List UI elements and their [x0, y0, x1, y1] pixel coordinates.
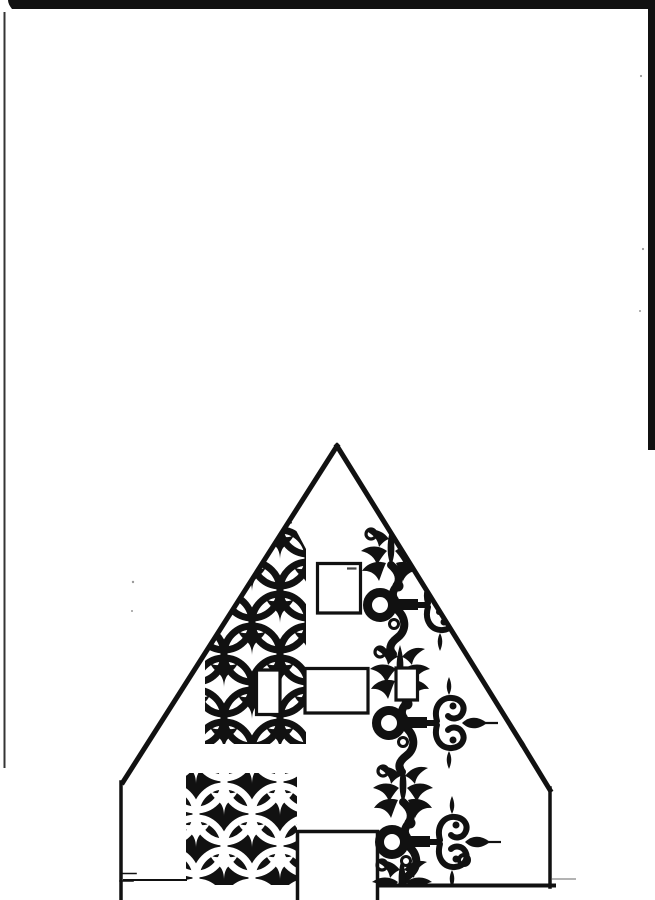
speck: [642, 248, 644, 250]
gable-template-drawing: [0, 0, 655, 900]
speck: [132, 581, 134, 583]
scanned-page: [0, 0, 655, 900]
window-scroll-small: [396, 668, 418, 700]
tracery-block-pattern: [186, 773, 297, 885]
paper-background: [0, 0, 655, 900]
speck: [131, 610, 133, 612]
window-mid-small: [257, 670, 281, 715]
door: [298, 832, 378, 900]
speck: [639, 310, 641, 312]
scan-right-strip: [648, 0, 655, 450]
speck: [640, 75, 642, 77]
window-attic: [318, 564, 361, 614]
scan-top-bar: [8, 0, 655, 9]
window-mid-wide: [305, 669, 368, 714]
